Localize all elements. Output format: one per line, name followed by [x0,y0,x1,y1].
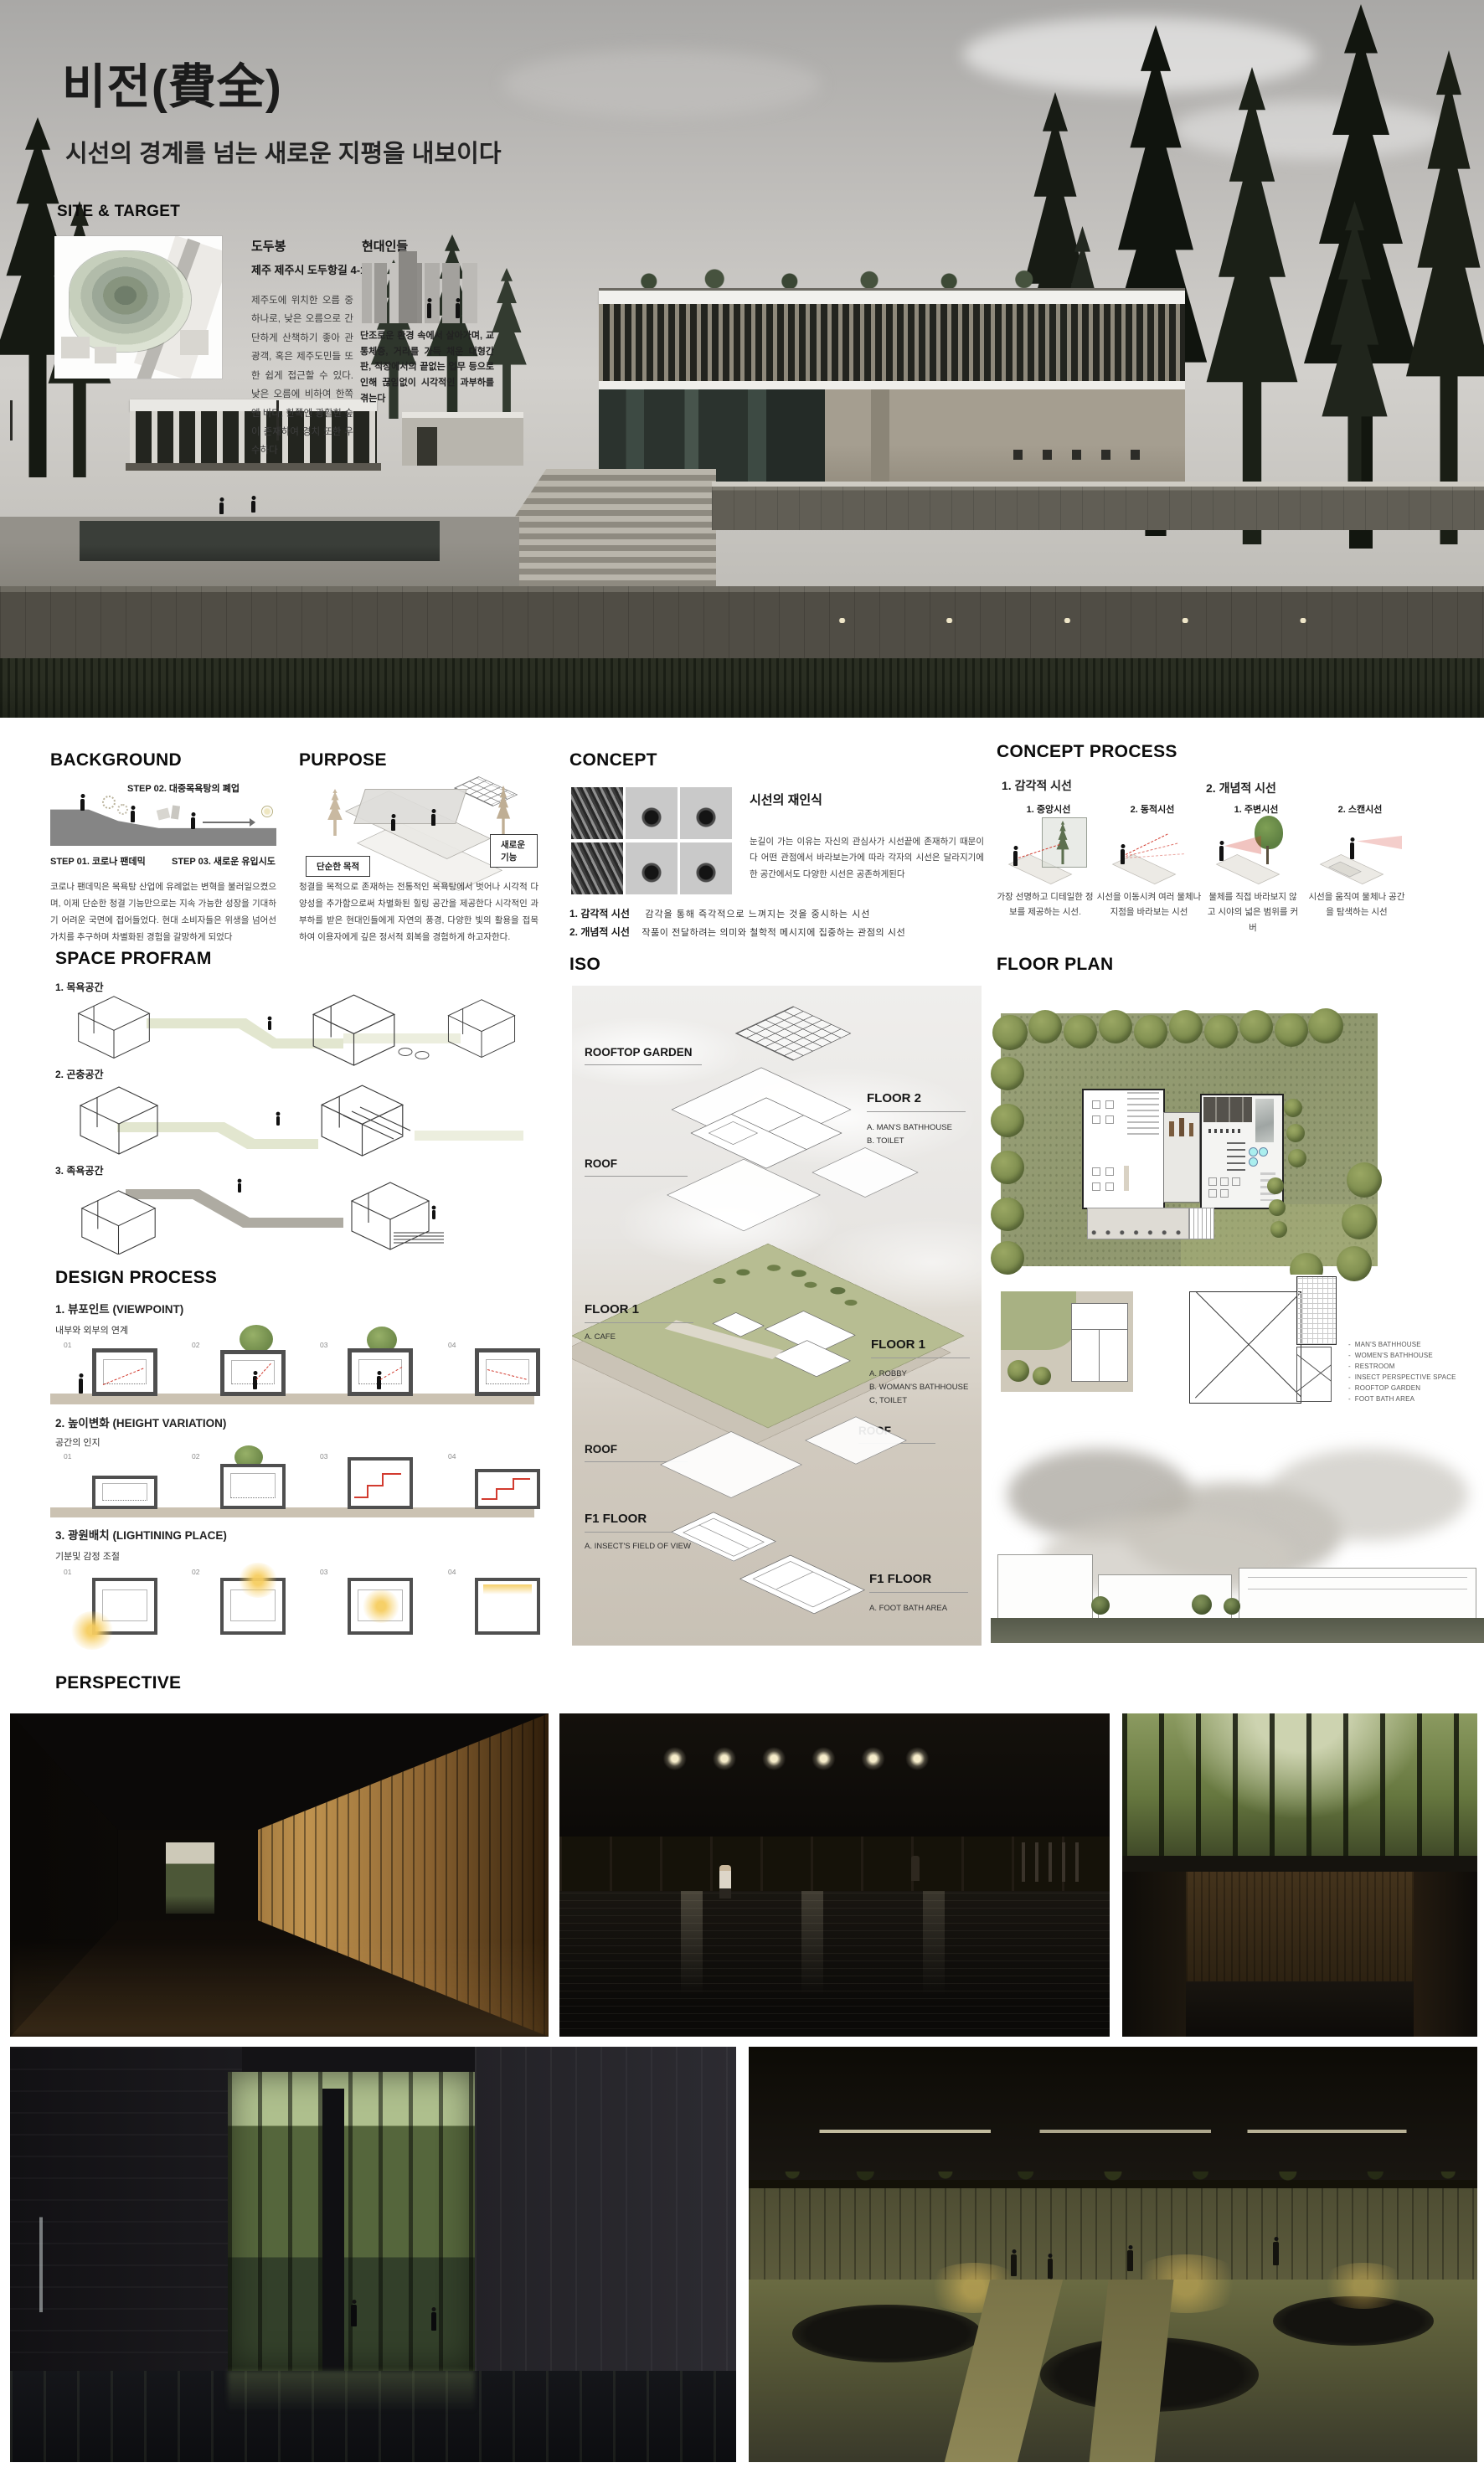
cp-col-3: 1. 주변시선 물체를 직접 바라보지 않고 시야의 넓은 범위를 커버 [1206,802,1300,816]
gaze-arrow [1126,834,1168,855]
wall-lights [821,618,1357,623]
legend-row: - RESTROOM [1348,1363,1395,1370]
light-band [483,1584,532,1595]
dp-frame [220,1350,286,1396]
purpose-description: 청결을 목적으로 존재하는 전통적인 목욕탕에서 벗어나 시각적 다양성을 추가… [299,879,538,946]
concept-item-1-label: 1. 감각적 시선 [569,908,630,920]
concept-description: 눈길이 가는 이유는 자신의 관심사가 시선끝에 존재하기 때문이다 어떤 관점… [750,834,984,883]
frame-number: 01 [64,1341,71,1349]
perspective-image-sunken-court [1122,1713,1477,2037]
person-silhouette [251,501,255,513]
concept-item-2-label: 2. 개념적 시선 [569,926,630,938]
arrow-icon [203,822,251,823]
frame-number: 02 [192,1568,199,1576]
perspective-image-pool-hall [559,1713,1110,2037]
concept-item-2: 2. 개념적 시선 작품이 전달하려는 의미와 철학적 메시지에 집중하는 관점… [569,925,997,940]
presentation-board: 비전(費全) 시선의 경계를 넘는 새로운 지평을 내보이다 SITE & TA… [0,0,1484,2473]
light-glow [70,1611,114,1650]
person-silhouette [456,303,460,318]
legend-bullet: - [1348,1352,1351,1359]
retaining-wall-coping [712,482,1484,487]
eye-image [680,842,732,894]
pine-tree [1306,201,1403,528]
iso-rooftop-grid-plane [735,1006,852,1060]
iso-f1-tray-2 [739,1555,865,1614]
iso-floor1-right-b: B. WOMAN'S BATHHOUSE [869,1381,968,1395]
concept-eye-grid [571,787,734,894]
foreground-vegetation [0,658,1484,718]
background-step1: STEP 01. 코로나 팬데믹 [50,854,146,868]
person-silhouette [191,817,195,829]
person-silhouette [1121,849,1125,864]
frame-number: 04 [448,1568,456,1576]
legend-row: - MAN'S BATHHOUSE [1348,1341,1421,1348]
eye-image [626,787,678,839]
building-glass-lower [599,389,825,482]
frame-number: 03 [320,1452,327,1461]
person-silhouette [131,811,135,822]
frame-number: 03 [320,1568,327,1576]
dp-frame [475,1348,540,1396]
perspective-image-underground-hall [749,2047,1477,2462]
site-target-heading: SITE & TARGET [57,203,180,221]
frame-number: 03 [320,1341,327,1349]
dp-frame [475,1578,540,1635]
background-heading: BACKGROUND [50,750,182,770]
ceiling-light-slits [807,2130,1420,2133]
dp-row3-label: 3. 광원배치 (LIGHTINING PLACE) [55,1526,227,1543]
cloud [963,17,1315,92]
small-building [402,412,523,466]
space-program-diagram-3 [67,1174,536,1255]
cp-col-1-desc: 가장 선명하고 디테일한 정보를 제공하는 시선. [995,889,1095,920]
legend-row: - INSECT PERSPECTIVE SPACE [1348,1373,1456,1381]
iso-roof-plate-lower [660,1431,802,1498]
space-program-item-1: 1. 목욕공간 [55,980,104,994]
dp-frame [475,1469,540,1509]
iso-floor2-item-a: A. MAN'S BATHHOUSE [867,1121,952,1136]
plan-steps [1189,1208,1214,1239]
perspective-image-bathhouse [10,2047,736,2462]
light-glow [238,1563,278,1598]
building-louver-band [599,304,1185,381]
frame-number: 04 [448,1341,456,1349]
concept-process-group-1: 1. 감각적 시선 [1002,777,1072,794]
iso-label-f1-right: F1 FLOOR [869,1572,968,1593]
person-silhouette [219,502,224,514]
dp-frame [220,1464,286,1509]
grand-stairs [498,469,716,595]
label-simple-purpose: 단순한 목적 [306,856,370,877]
corridor-end-doorway [166,1842,214,1914]
street-lamp [10,400,13,441]
person-silhouette [1219,846,1224,861]
virus-icon [102,796,116,809]
background-description: 코로나 팬데믹은 목욕탕 산업에 유례없는 변혁을 불러일으켰으며, 이제 단순… [50,879,276,946]
red-step-line [351,1461,408,1504]
legend-bullet: - [1348,1341,1351,1348]
building-fascia [599,291,1185,304]
dp-frame [348,1348,413,1396]
cloud [1172,100,1449,159]
svg-person [276,1112,281,1126]
concept-heading: CONCEPT [569,750,657,770]
cloud [502,50,821,117]
building-midband [599,381,1185,389]
floor-plan-site [1001,1013,1378,1266]
cp-col-2: 2. 동적시선 시선을 이동시켜 여러 물체나 지점을 바라보는 시선 [1102,802,1196,816]
legend-bullet: - [1348,1363,1351,1370]
cp-col-1: 1. 중앙시선 가장 선명하고 디테일한 정보를 제공하는 시선. [998,802,1092,816]
concept-process-heading: CONCEPT PROCESS [997,742,1177,762]
figure-silhouette [1048,2259,1053,2279]
closed-building-icon [157,807,170,820]
frame-number: 04 [448,1452,456,1461]
cp-col-4-desc: 시선을 움직여 물체나 공간을 탐색하는 시선 [1306,889,1407,920]
plan-detail-green [1001,1291,1133,1392]
purpose-axon-diagram: 단순한 목적 새로운 기능 [299,779,538,873]
figure-silhouette [1273,2242,1279,2265]
frame-number: 02 [192,1452,199,1461]
dp-row3-sub: 기분및 감정 조절 [55,1549,120,1563]
figure-silhouette [431,2312,436,2331]
eye-image [680,787,732,839]
eye-image [571,787,623,839]
eye-image [571,842,623,894]
water-spouts [39,2204,228,2312]
perspective-heading: PERSPECTIVE [55,1673,181,1693]
person-silhouette [1350,842,1354,859]
frame-tree [240,1325,273,1353]
iso-label-rooftop-garden: ROOFTOP GARDEN [585,1046,702,1065]
frame-number: 01 [64,1568,71,1576]
iso-heading: ISO [569,955,600,975]
concept-item-1-desc: 감각을 통해 즉각적으로 느껴지는 것을 중시하는 시선 [645,909,870,920]
reflecting-pool [792,2305,982,2362]
space-program-diagram-2 [67,1082,536,1162]
cp-col-4: 2. 스캔시선 시선을 움직여 물체나 공간을 탐색하는 시선 [1310,802,1404,816]
iso-floor2-item-b: B. TOILET [867,1135,904,1149]
concept-item-2-desc: 작품이 전달하려는 의미와 철학적 메시지에 집중하는 관점의 시선 [642,928,905,938]
iso-panel: ROOFTOP GARDEN FLOOR 2 A. MAN'S BATHHOUS… [572,986,982,1646]
cp-col-3-label: 1. 주변시선 [1213,802,1300,816]
person-silhouette [427,303,431,318]
legend-label: ROOFTOP GARDEN [1355,1384,1421,1392]
legend-bullet: - [1348,1395,1351,1403]
section-building-right [1239,1568,1476,1620]
cp-col-3-desc: 물체를 직접 바라보지 않고 시야의 넓은 범위를 커버 [1206,889,1300,935]
cp-col-2-label: 2. 동적시선 [1109,802,1196,816]
space-program-item-2: 2. 곤충공간 [55,1067,104,1081]
dp-frame [92,1476,157,1509]
dp-row1-sub: 내부와 외부의 연계 [55,1323,128,1337]
site-name: 도두봉 [251,237,286,255]
view-cone [1224,836,1261,854]
legend-bullet: - [1348,1384,1351,1392]
perspective-image-corridor [10,1713,549,2037]
site-address: 제주 제주시 도두항길 4-17 [251,261,373,277]
section-building-left [997,1554,1093,1620]
legend-label: WOMEN'S BATHHOUSE [1355,1352,1433,1359]
reflecting-pool [80,521,440,561]
cp-col-4-label: 2. 스캔시선 [1317,802,1404,816]
dp-row2-sub: 공간의 인지 [55,1435,100,1449]
hero-render: 비전(費全) 시선의 경계를 넘는 새로운 지평을 내보이다 SITE & TA… [0,0,1484,718]
virus-icon [117,804,128,815]
svg-person [238,1179,242,1193]
bulb-icon [261,806,273,817]
plan-detail-roof [1189,1275,1336,1414]
iso-floor1-right-a: A. ROBBY [869,1368,907,1382]
iso-roof-plate-small [812,1147,918,1198]
legend-label: INSECT PERSPECTIVE SPACE [1355,1373,1456,1381]
concept-subheading: 시선의 재인식 [750,791,822,808]
pavilion-base [126,463,381,471]
legend-label: FOOT BATH AREA [1355,1395,1414,1403]
plan-terrace [1087,1208,1189,1239]
concept-item-1: 1. 감각적 시선 감각을 통해 즉각적으로 느껴지는 것을 중시하는 시선 [569,906,988,921]
figure-silhouette [911,1856,920,1881]
iso-roof-plate [667,1159,821,1231]
page-subtitle: 시선의 경계를 넘는 새로운 지평을 내보이다 [65,134,502,169]
person-silhouette [391,819,395,831]
legend-row: - ROOFTOP GARDEN [1348,1384,1420,1392]
iso-label-floor2: FLOOR 2 [867,1091,966,1112]
person-silhouette [1013,851,1018,866]
axon-wall-panel [353,789,467,824]
building-stone-lower [825,389,1185,482]
person-silhouette [79,1378,83,1394]
frame-number: 02 [192,1341,199,1349]
space-program-diagram-1 [67,993,536,1074]
dp-row1-label: 1. 뷰포인트 (VIEWPOINT) [55,1300,183,1316]
space-program-heading: SPACE PROFRAM [55,949,212,969]
svg-person [268,1017,272,1030]
design-process-heading: DESIGN PROCESS [55,1268,217,1288]
iso-label-roof-1: ROOF [585,1157,688,1177]
figure-silhouette [351,2305,357,2326]
legend-row: - FOOT BATH AREA [1348,1395,1414,1403]
closed-building-icon [171,805,180,819]
iso-floor1-right-c: C, TOILET [869,1394,907,1409]
iso-label-floor1-left: FLOOR 1 [585,1302,693,1323]
person-silhouette [80,799,85,811]
purpose-heading: PURPOSE [299,750,387,770]
red-step-line [478,1472,535,1504]
site-description: 제주도에 위치한 오름 중 하나로, 낮은 오름으로 간단하게 산책하기 좋아 … [251,291,353,461]
iso-label-floor1-right: FLOOR 1 [871,1337,970,1358]
iso-f1-right-a: A. FOOT BATH AREA [869,1602,947,1616]
section-ground [991,1618,1484,1643]
tan-tree [324,789,346,836]
floor-plan-heading: FLOOR PLAN [997,955,1114,975]
background-terrain-diagram [50,794,276,846]
cp-col-2-desc: 시선을 이동시켜 여러 물체나 지점을 바라보는 시선 [1095,889,1203,920]
concept-process-group-2: 2. 개념적 시선 [1206,780,1276,796]
scan-cone [1357,836,1402,849]
eye-image [626,842,678,894]
iso-floor1-left-a: A. CAFE [585,1331,616,1345]
page-title: 비전(費全) [62,49,282,117]
dp-row2-label: 2. 높이변화 (HEIGHT VARIATION) [55,1414,226,1430]
figure-silhouette [1127,2250,1133,2271]
plan-room-left [1082,1089,1165,1209]
background-step2: STEP 02. 대중목욕탕의 폐업 [127,781,240,795]
cp-col-1-label: 1. 중앙시선 [1005,802,1092,816]
dp-frame [348,1457,413,1509]
iso-f1-left-a: A. INSECT'S FIELD OF VIEW [585,1540,691,1554]
section-drawing [991,1424,1484,1643]
plan-courtyard [1163,1112,1200,1203]
figure-in-white [719,1865,731,1899]
svg-person [432,1206,436,1219]
legend-bullet: - [1348,1373,1351,1381]
person-silhouette [431,814,435,826]
section-building-mid [1098,1574,1232,1620]
city-illustration [362,263,487,323]
legend-row: - WOMEN'S BATHHOUSE [1348,1352,1433,1359]
background-step3: STEP 03. 새로운 유입시도 [172,854,276,868]
retaining-wall-upper [712,482,1484,530]
legend-label: RESTROOM [1355,1363,1395,1370]
arrow-head-icon [250,818,255,827]
legend-label: MAN'S BATHHOUSE [1355,1341,1421,1348]
target-description: 단조로운 환경 속에서 살아가며, 교통체증, 거리를 가득 채운 대형간판, … [360,328,494,406]
frame-number: 01 [64,1452,71,1461]
light-glow [362,1589,400,1623]
dp-frame [92,1348,157,1396]
figure-silhouette [1011,2254,1017,2276]
site-map [54,236,222,379]
label-new-function: 새로운 기능 [490,834,538,868]
